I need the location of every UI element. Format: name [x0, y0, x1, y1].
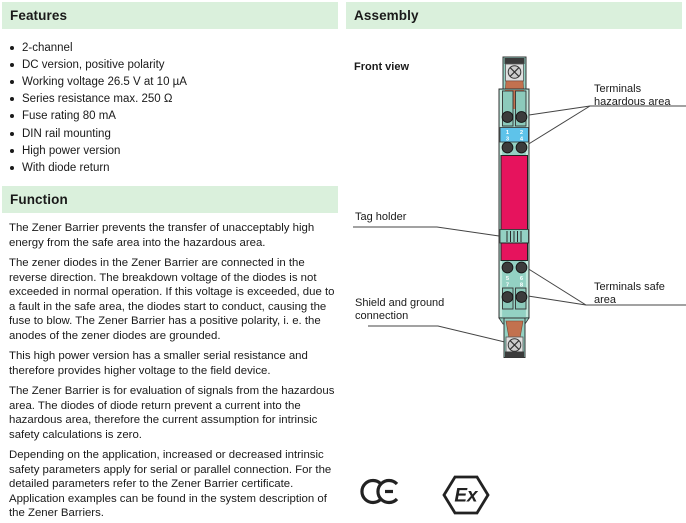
bullet-icon [10, 97, 14, 101]
terminal-screw [516, 112, 527, 123]
bullet-icon [10, 114, 14, 118]
function-title: Function [10, 192, 68, 207]
feature-text: With diode return [22, 162, 110, 174]
paragraph: Depending on the application, increased … [9, 448, 339, 521]
certification-marks: Ex [362, 477, 488, 513]
assembly-section-header: Assembly [346, 2, 682, 29]
feature-text: Series resistance max. 250 Ω [22, 93, 173, 105]
assembly-diagram: 1 2 3 4 5 6 7 8 [343, 50, 686, 523]
features-section-header: Features [2, 2, 338, 29]
function-text: The Zener Barrier prevents the transfer … [9, 221, 339, 523]
ex-mark-icon: Ex [444, 477, 488, 513]
ex-mark-text: Ex [454, 486, 479, 507]
terminal-number-band [500, 128, 529, 143]
paragraph: This high power version has a smaller se… [9, 349, 339, 378]
bottom-cap [505, 352, 524, 358]
assembly-title: Assembly [354, 8, 419, 23]
leader-line [529, 106, 590, 115]
terminal-number: 2 [520, 130, 523, 136]
feature-text: Fuse rating 80 mA [22, 110, 116, 122]
feature-text: DC version, positive polarity [22, 59, 165, 71]
terminal-screw [502, 142, 513, 153]
terminal-screw [516, 142, 527, 153]
features-list: 2-channel DC version, positive polarity … [10, 39, 187, 177]
terminal-screw [516, 262, 527, 273]
ce-mark-icon [362, 480, 397, 502]
leader-line [528, 296, 586, 305]
list-item: 2-channel [10, 39, 187, 56]
leader-line [527, 106, 590, 145]
terminal-screw [502, 262, 513, 273]
bottom-mount-wedge [506, 321, 523, 338]
feature-text: Working voltage 26.5 V at 10 µA [22, 76, 187, 88]
front-panel-upper [501, 156, 528, 230]
list-item: With diode return [10, 159, 187, 176]
bullet-icon [10, 46, 14, 50]
top-cap [505, 58, 525, 64]
paragraph: The zener diodes in the Zener Barrier ar… [9, 256, 339, 343]
list-item: DC version, positive polarity [10, 56, 187, 73]
barrier-device: 1 2 3 4 5 6 7 8 [499, 57, 529, 358]
terminal-screw [502, 292, 513, 303]
screw-icon [508, 339, 521, 352]
feature-text: High power version [22, 145, 120, 157]
list-item: DIN rail mounting [10, 125, 187, 142]
feature-text: 2-channel [22, 42, 73, 54]
terminal-screw [516, 292, 527, 303]
leader-line [353, 227, 499, 236]
list-item: High power version [10, 142, 187, 159]
bullet-icon [10, 149, 14, 153]
bullet-icon [10, 166, 14, 170]
terminal-screw [502, 112, 513, 123]
features-title: Features [10, 8, 67, 23]
bullet-icon [10, 63, 14, 67]
list-item: Fuse rating 80 mA [10, 108, 187, 125]
datasheet-page: Features 2-channel DC version, positive … [0, 0, 686, 523]
bullet-icon [10, 132, 14, 136]
feature-text: DIN rail mounting [22, 128, 111, 140]
list-item: Working voltage 26.5 V at 10 µA [10, 73, 187, 90]
list-item: Series resistance max. 250 Ω [10, 91, 187, 108]
bullet-icon [10, 80, 14, 84]
screw-icon [508, 66, 521, 79]
paragraph: The Zener Barrier prevents the transfer … [9, 221, 339, 250]
paragraph: The Zener Barrier is for evaluation of s… [9, 384, 339, 442]
front-panel-lower [501, 243, 528, 261]
function-section-header: Function [2, 186, 338, 213]
leader-line [368, 326, 509, 343]
